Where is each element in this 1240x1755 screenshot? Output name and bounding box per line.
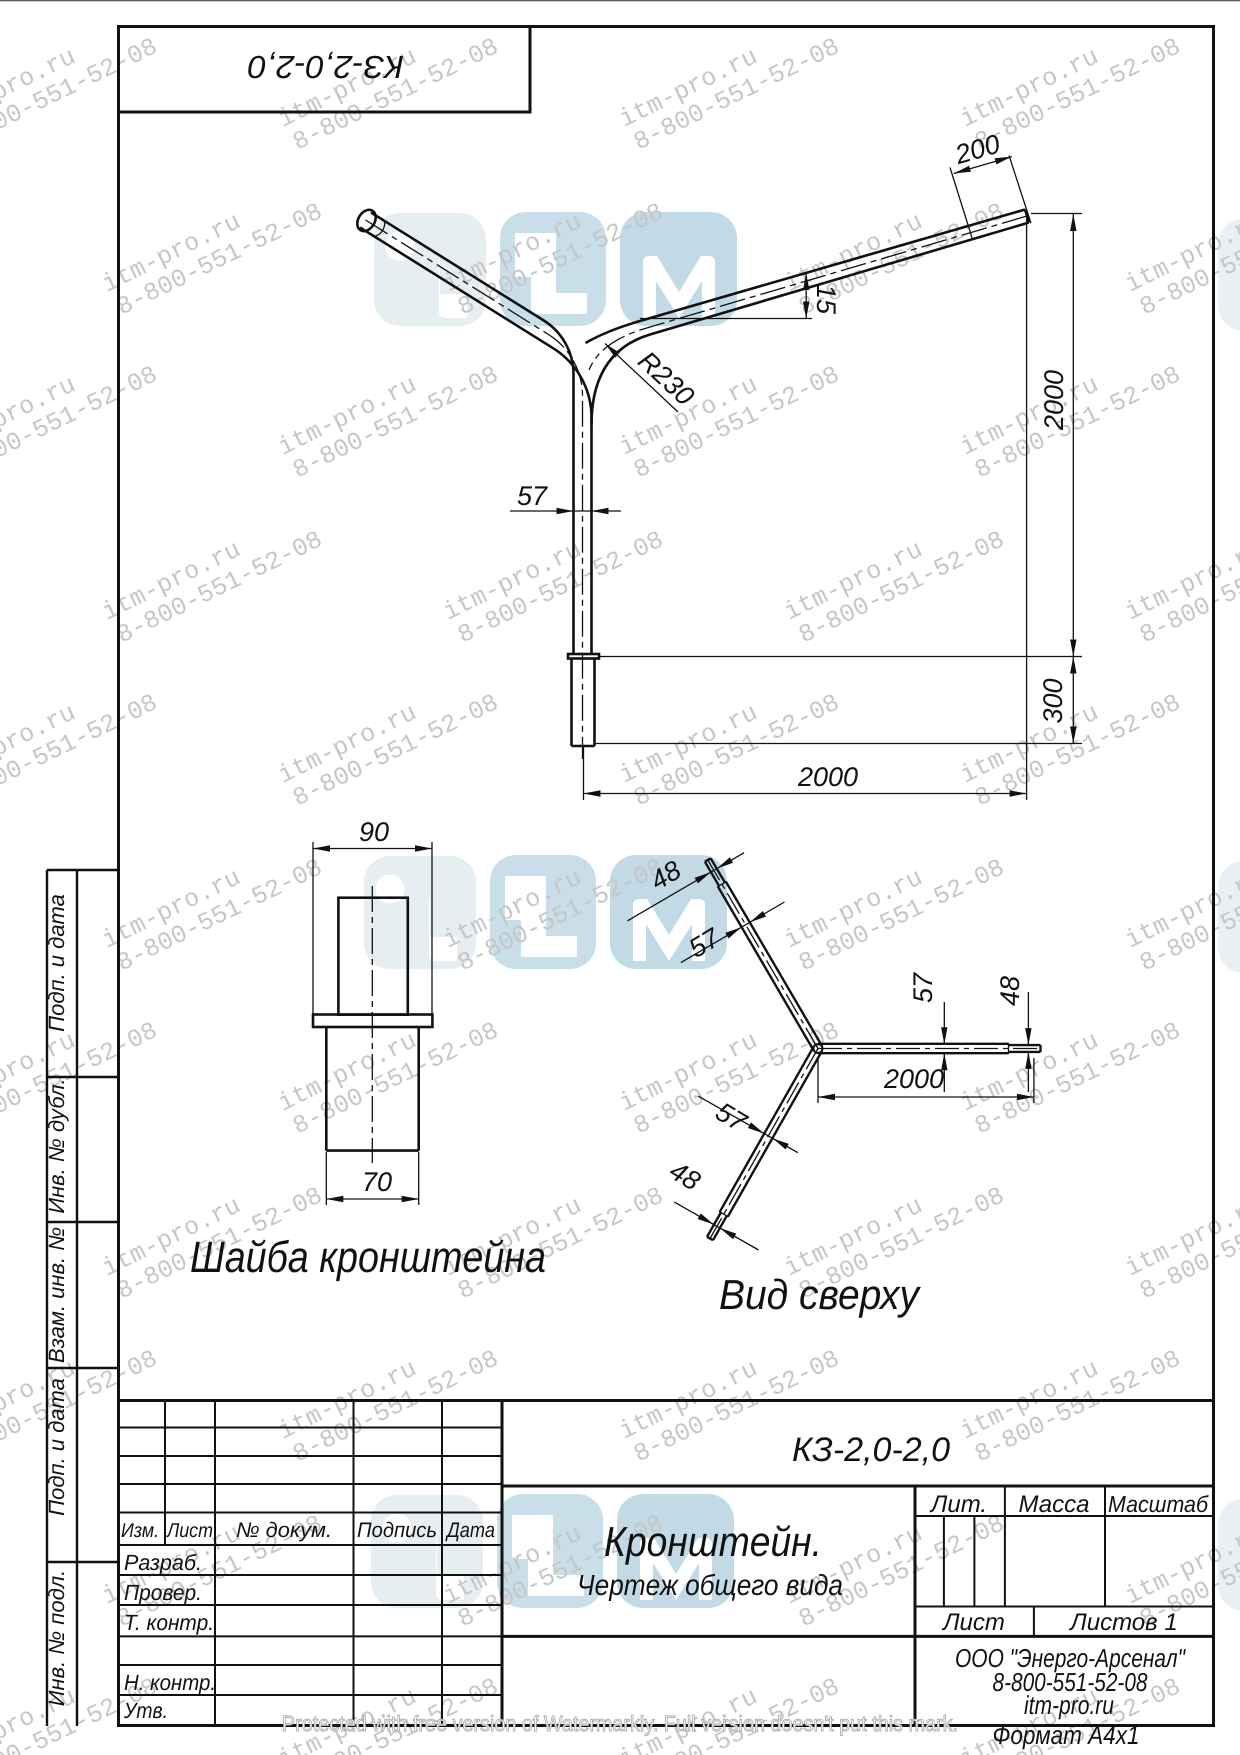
svg-text:8-800-551-52-08: 8-800-551-52-08 (0, 1344, 162, 1469)
svg-text:Инв. № дубл.: Инв. № дубл. (44, 1078, 69, 1213)
svg-text:8-800-551-52-08: 8-800-551-52-08 (0, 32, 162, 157)
svg-text:Вид сверху: Вид сверху (719, 1271, 922, 1318)
svg-text:15: 15 (811, 284, 841, 315)
svg-text:Инв. № подл.: Инв. № подл. (44, 1570, 69, 1707)
svg-text:itm-pro.ru: itm-pro.ru (1024, 1690, 1114, 1720)
svg-text:70: 70 (362, 1167, 392, 1197)
svg-text:57: 57 (517, 481, 548, 511)
svg-text:Подп. и дата: Подп. и дата (44, 894, 69, 1032)
svg-text:2000: 2000 (1039, 370, 1069, 431)
svg-text:КЗ-2,0-2,0: КЗ-2,0-2,0 (248, 49, 404, 85)
svg-text:Формат А4х1: Формат А4х1 (993, 1720, 1140, 1750)
svg-text:Подпись: Подпись (357, 1519, 437, 1542)
svg-text:Лист: Лист (941, 1609, 1005, 1636)
svg-text:Лист: Лист (165, 1520, 213, 1542)
svg-text:Взам. инв. №: Взам. инв. № (44, 1227, 69, 1363)
svg-text:Т. контр.: Т. контр. (124, 1610, 214, 1635)
svg-text:48: 48 (664, 1155, 705, 1196)
svg-text:8-800-551-52-08: 8-800-551-52-08 (0, 688, 162, 813)
svg-text:Protected with free version of: Protected with free version of Watermark… (282, 1711, 958, 1736)
svg-text:57: 57 (908, 972, 938, 1003)
svg-text:Утв.: Утв. (123, 1698, 168, 1723)
svg-text:Разраб.: Разраб. (124, 1550, 202, 1575)
svg-text:Листов 1: Листов 1 (1068, 1609, 1177, 1636)
svg-text:Шайба кронштейна: Шайба кронштейна (190, 1233, 546, 1282)
svg-text:Изм.: Изм. (121, 1520, 159, 1542)
svg-text:8-800-551-52-08: 8-800-551-52-08 (0, 360, 162, 485)
svg-text:Дата: Дата (445, 1519, 495, 1542)
svg-text:Подп. и дата: Подп. и дата (44, 1378, 69, 1516)
svg-text:8-800-551-52-08: 8-800-551-52-08 (0, 1016, 162, 1141)
svg-text:48: 48 (995, 976, 1025, 1006)
svg-text:90: 90 (359, 817, 389, 847)
svg-text:Кронштейн.: Кронштейн. (604, 1518, 822, 1565)
svg-text:200: 200 (951, 129, 1004, 171)
svg-text:Масса: Масса (1019, 1491, 1090, 1518)
svg-text:№ докум.: № докум. (236, 1519, 332, 1542)
svg-text:2000: 2000 (797, 762, 858, 792)
svg-text:Н. контр.: Н. контр. (124, 1670, 216, 1695)
svg-text:КЗ-2,0-2,0: КЗ-2,0-2,0 (792, 1431, 950, 1469)
svg-text:300: 300 (1038, 678, 1068, 723)
svg-text:Лит.: Лит. (929, 1491, 987, 1518)
svg-text:Чертеж общего вида: Чертеж общего вида (577, 1570, 843, 1602)
svg-text:Масштаб: Масштаб (1108, 1491, 1209, 1517)
svg-text:2000: 2000 (883, 1064, 944, 1094)
svg-text:Провер.: Провер. (124, 1580, 202, 1605)
